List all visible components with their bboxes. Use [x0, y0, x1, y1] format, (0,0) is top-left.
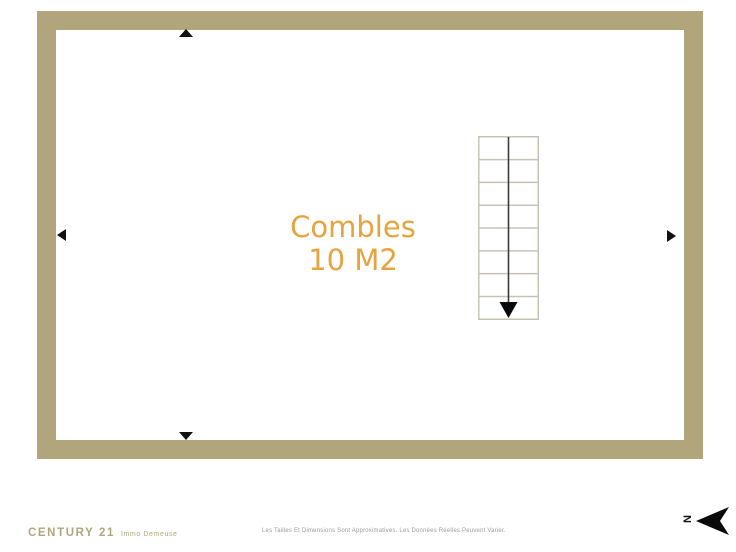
room-area: 10 M2 — [243, 244, 463, 277]
north-compass: N — [683, 505, 731, 537]
direction-marker-right-icon — [667, 230, 676, 242]
footer-brand: CENTURY 21Immo Demeuse — [28, 521, 178, 540]
north-arrow-icon — [696, 507, 729, 535]
agency-name: Immo Demeuse — [121, 531, 178, 538]
direction-marker-down-icon — [179, 432, 193, 440]
room-label: Combles 10 M2 — [243, 211, 463, 277]
compass-north-letter: N — [682, 515, 694, 523]
room-name: Combles — [243, 211, 463, 244]
floor-plan-page: Combles 10 M2 CENTURY 21Immo Demeuse Les… — [0, 0, 736, 552]
disclaimer-text: Les Tailles Et Dimensions Sont Approxima… — [262, 528, 506, 534]
century21-logo: CENTURY 21 — [28, 527, 115, 539]
direction-marker-left-icon — [57, 229, 66, 241]
direction-marker-up-icon — [179, 29, 193, 37]
staircase-icon — [478, 136, 539, 320]
